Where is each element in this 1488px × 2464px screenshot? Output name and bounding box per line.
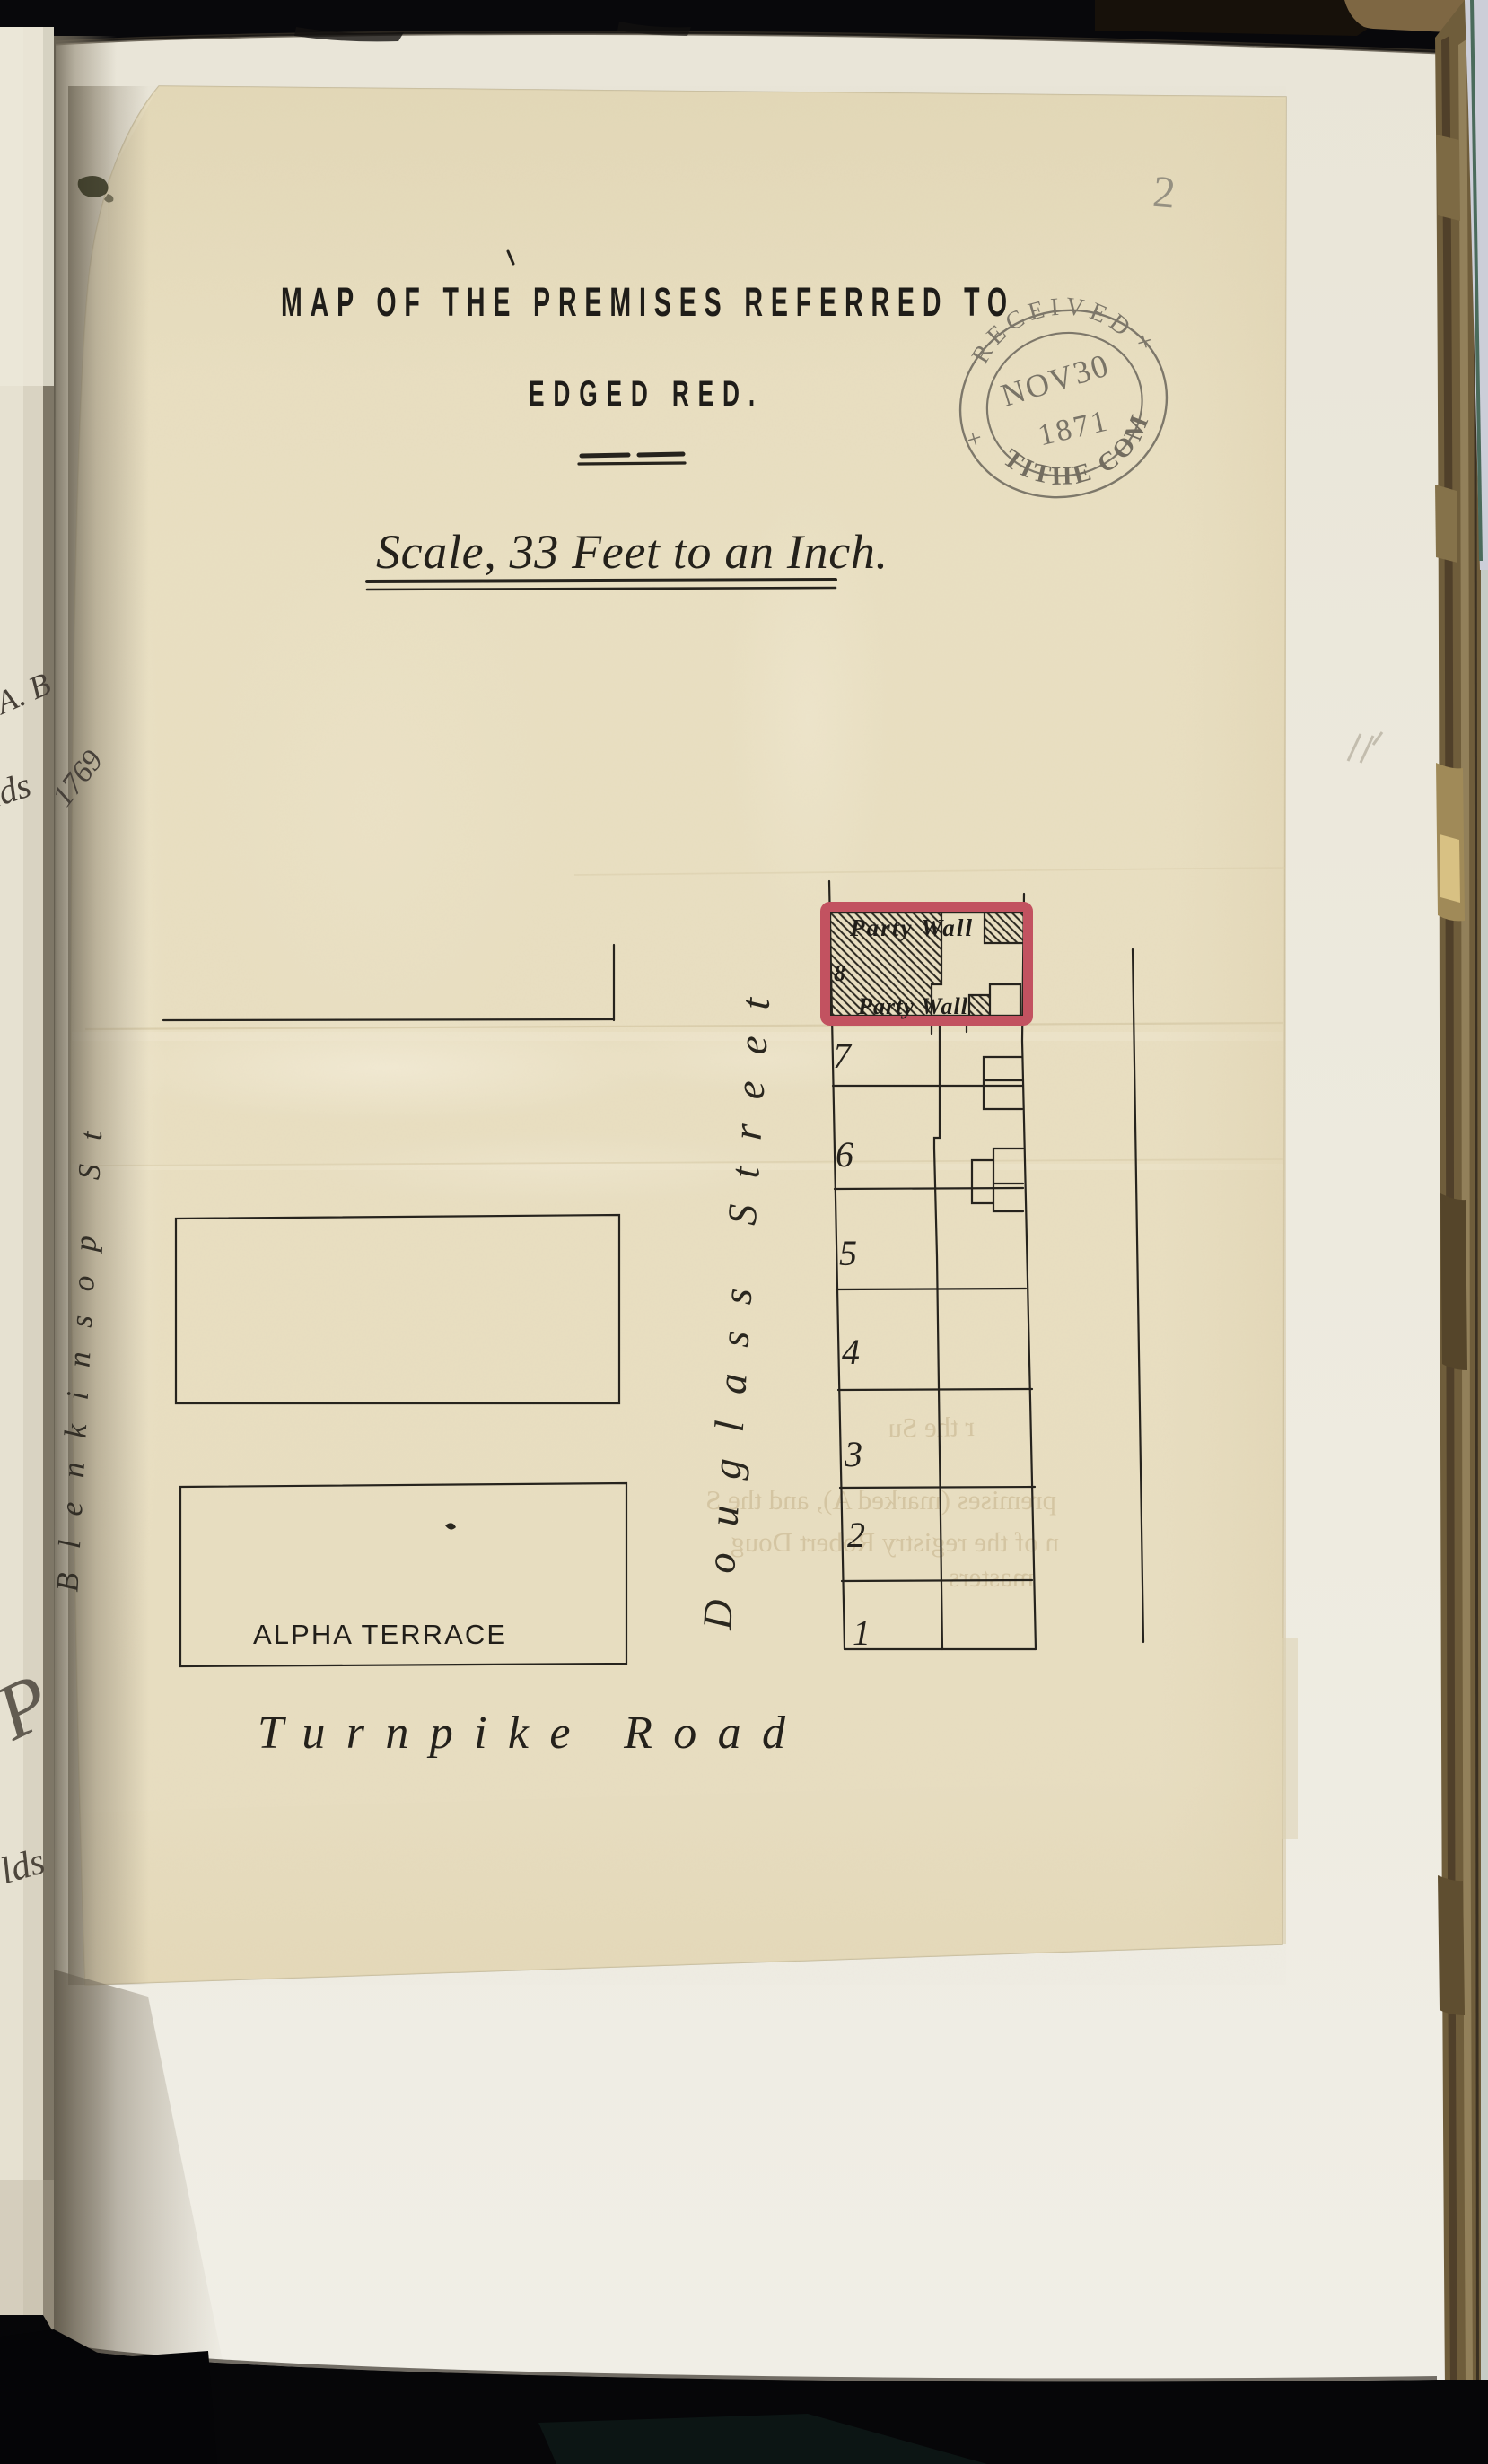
svg-text:2: 2 [1151,166,1177,218]
svg-text:2: 2 [847,1515,865,1555]
svg-text:Party Wall: Party Wall [857,993,968,1019]
svg-text:1: 1 [853,1612,871,1653]
svg-text:n of the registry Robert Doug: n of the registry Robert Doug [731,1526,1059,1558]
svg-text:Party Wall: Party Wall [849,914,972,941]
svg-text:MAP OF THE PREMISES REFERRED T: MAP OF THE PREMISES REFERRED TO [281,279,1015,325]
svg-text:ALPHA TERRACE: ALPHA TERRACE [253,1619,509,1650]
svg-text:masters: masters [949,1561,1034,1593]
svg-text:8: 8 [834,960,845,986]
svg-text:4: 4 [842,1332,860,1372]
svg-text:5: 5 [839,1233,857,1273]
svg-text:3: 3 [844,1434,862,1474]
svg-text:7: 7 [833,1035,853,1076]
svg-text:r the Su: r the Su [888,1411,975,1444]
svg-text:Scale, 33 Feet to an Inch.: Scale, 33 Feet to an Inch. [376,525,888,579]
svg-text:EDGED RED.: EDGED RED. [529,374,764,414]
svg-text:6: 6 [836,1134,853,1175]
svg-text:premises (marked A), and the S: premises (marked A), and the S [705,1484,1056,1516]
